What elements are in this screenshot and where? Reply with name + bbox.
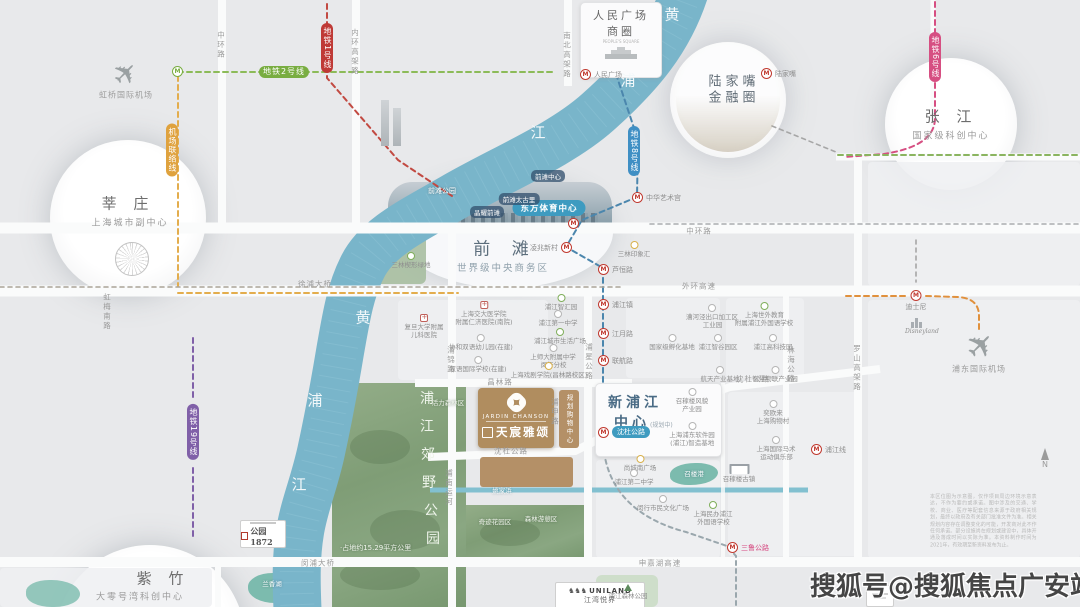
map-block: [726, 298, 804, 378]
horses-icon: ♞♞♞: [568, 587, 587, 595]
twin-towers-icon: [381, 100, 401, 146]
river-name-char: 江: [291, 474, 306, 495]
property-parcel-2: [480, 457, 573, 487]
road-label: 中环路: [216, 31, 227, 60]
dot-yellow-icon: [630, 241, 638, 249]
road-label: 虹梅南路: [102, 293, 113, 331]
red-seal-icon: [241, 532, 248, 540]
road-label: 外环高速: [682, 281, 716, 292]
disneyland-script: Disneyland: [905, 328, 927, 335]
compass-icon: N: [1036, 448, 1054, 469]
station-label: 中华艺术宫: [646, 193, 681, 203]
map-block: [868, 162, 1080, 286]
river-name-char: 江: [530, 122, 545, 143]
river-name-char: 浦: [307, 390, 322, 411]
hub-qiantan-name: 前 滩: [473, 235, 536, 260]
metro-icon: M: [598, 355, 609, 366]
road-label: 中环路: [686, 226, 712, 237]
hub-xinpujiang-line1: 新浦江: [608, 392, 721, 412]
property-brand-en: JARDIN CHANSON: [483, 413, 550, 419]
watermark: 搜狐号@搜狐焦点广安站: [810, 566, 1080, 603]
metro-line-badge: 地铁19号线: [187, 404, 199, 460]
pudong-airport-label: 浦东国际机场: [952, 364, 1006, 375]
hub-zizhu-name: 紫 竹: [137, 568, 190, 589]
metro-line-badge: 地铁1号线: [321, 23, 333, 73]
hub-xinpujiang-line2: 中心: [614, 412, 650, 432]
hub-xinzhuang-name: 莘 庄: [102, 193, 155, 214]
divider: [486, 421, 546, 422]
park1872-badge: 公园1872: [240, 520, 286, 548]
compass-n: N: [1036, 460, 1054, 469]
metro-icon: M: [632, 192, 643, 203]
metro-icon: M: [172, 66, 183, 77]
hub-xinzhuang-subtitle: 上海城市副中心: [91, 216, 168, 229]
hub-xinpujiang-note: (规划中): [650, 420, 673, 429]
poi: 三林印象汇: [617, 241, 652, 258]
river-name-char: 黄: [355, 307, 370, 328]
dot-gray-icon: [554, 310, 562, 318]
hub-zhangjiang-name: 张 江: [925, 106, 978, 127]
metro-line-badge: 地铁2号线: [259, 66, 309, 78]
qiantan-photo-strip: [388, 182, 612, 229]
hub-renmin-caption: PEOPLE'S SQUARE: [589, 40, 653, 45]
developer-seal-icon: [482, 427, 493, 438]
uniland-cn: 江湾悦界: [584, 595, 616, 605]
disneyland-castle-icon: Disneyland: [905, 318, 927, 335]
map-block: [728, 392, 858, 556]
road-label: 申嘉湖高速: [639, 558, 682, 569]
map-block: [626, 298, 720, 378]
dot-gray-icon: [549, 344, 557, 352]
hub-renmin-card: 人民广场 商圈 PEOPLE'S SQUARE: [580, 2, 662, 78]
hub-zhangjiang-subtitle: 国家级科创中心: [912, 129, 989, 142]
corner-lake: [26, 580, 80, 607]
river-name-char: 黄: [664, 4, 679, 25]
property-strip-note: 规划购物中心: [559, 390, 579, 448]
metro-icon: M: [598, 299, 609, 310]
metro-station: M中华艺术宫: [632, 192, 681, 203]
park1872-label: 公园1872: [250, 526, 285, 547]
road-label: 罗山高架路: [852, 344, 863, 392]
property-card-jardin-chanson: JARDIN CHANSON 天宸雅颂: [478, 388, 554, 448]
metro-icon: M: [598, 264, 609, 275]
road-label: 内环高架路: [350, 28, 361, 76]
museum-building-icon: [603, 46, 639, 60]
transit-dash: [772, 126, 836, 152]
map-block: [398, 300, 548, 380]
road-label: 南北高架路: [562, 31, 573, 79]
road-label: 浦星公路: [584, 343, 595, 381]
dot-green-icon: [557, 294, 565, 302]
four-petal-flower-icon: [505, 392, 527, 412]
park-area-note: ·占地约15.29平方公里: [340, 543, 411, 553]
dot-green-icon: [556, 328, 564, 336]
location-map: 莘 庄 上海城市副中心 张 江 国家级科创中心 紫 竹 大零号湾科创中心 陆家嘴…: [0, 0, 1080, 607]
hub-zizhu-subtitle: 大零号湾科创中心: [96, 590, 184, 603]
sanlin-green-wedge: [368, 226, 426, 284]
hub-qiantan-subtitle: 世界级中央商务区: [457, 260, 549, 274]
hub-lujiazui-line2: 金融圈: [708, 87, 759, 106]
metro-icon: M: [598, 328, 609, 339]
disclaimer-text: 本区位图为示意图，仅作项目周边环境示意表达，不作为要约或承诺。图中涉及的交通、学…: [930, 494, 1037, 549]
ferris-wheel-icon: [115, 242, 149, 276]
metro-station: M芦恒路: [598, 264, 633, 275]
poi: 浦江智汇园: [544, 294, 579, 311]
property-name: 天宸雅颂: [496, 424, 550, 440]
lanxiang-lake: [248, 573, 302, 603]
poi-label: 浦江智汇园: [545, 303, 578, 311]
station-label: 芦恒路: [612, 265, 633, 275]
uniland-en: UNILAND: [589, 587, 632, 595]
metro-station: M: [172, 66, 183, 77]
road-label: 徐浦大桥: [298, 279, 332, 290]
hongqiao-airport-label: 虹桥国际机场: [99, 90, 153, 101]
metro-line-badge: 地铁8号线: [628, 126, 640, 176]
road-label: 闵浦大桥: [301, 558, 335, 569]
hub-renmin-name: 人民广场: [581, 7, 661, 23]
hub-renmin-suffix: 商圈: [581, 23, 661, 39]
poi-label: 三林印象汇: [618, 250, 651, 258]
uniland-badge: ♞♞♞ UNILAND 江湾悦界: [555, 582, 645, 607]
hub-xinpujiang-card: 新浦江 中心 (规划中): [595, 383, 722, 457]
